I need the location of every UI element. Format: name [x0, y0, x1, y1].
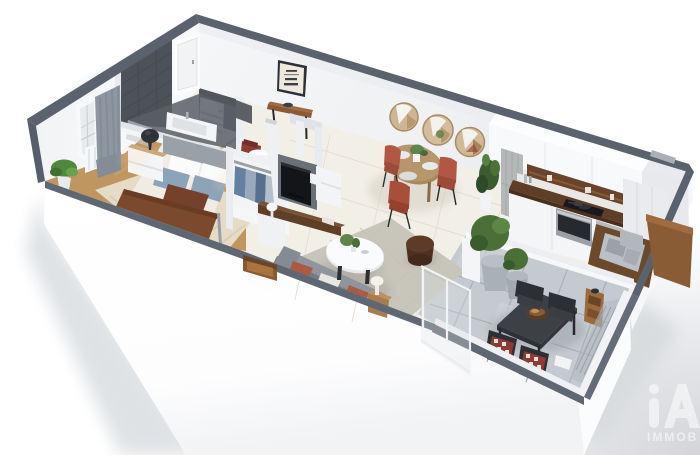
svg-text:IMMOB: IMMOB	[647, 430, 698, 444]
